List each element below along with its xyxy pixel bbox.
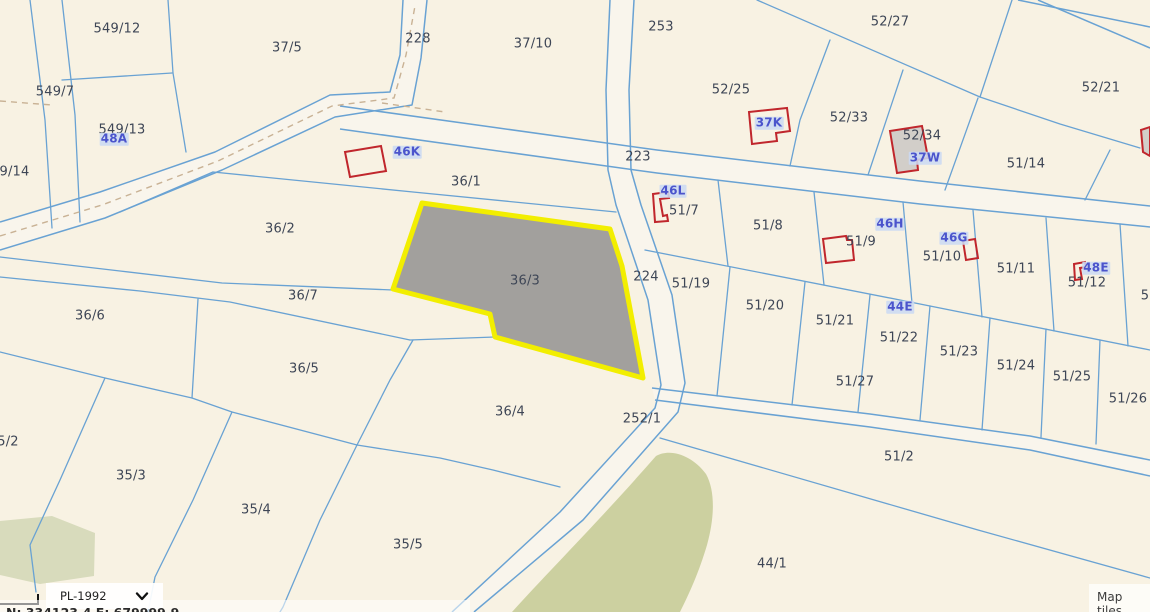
map-tiles-label: Map tiles — [1089, 584, 1150, 612]
map-canvas[interactable] — [0, 0, 1150, 612]
coordinates-text: N: 334123.4 E: 679999.9 — [6, 605, 179, 612]
map-viewer: 549/1237/5549/7549/13549/1437/1052/2752/… — [0, 0, 1150, 612]
building-edge-partial — [1141, 127, 1150, 156]
coordinates-readout: N: 334123.4 E: 679999.9 — [0, 600, 470, 612]
